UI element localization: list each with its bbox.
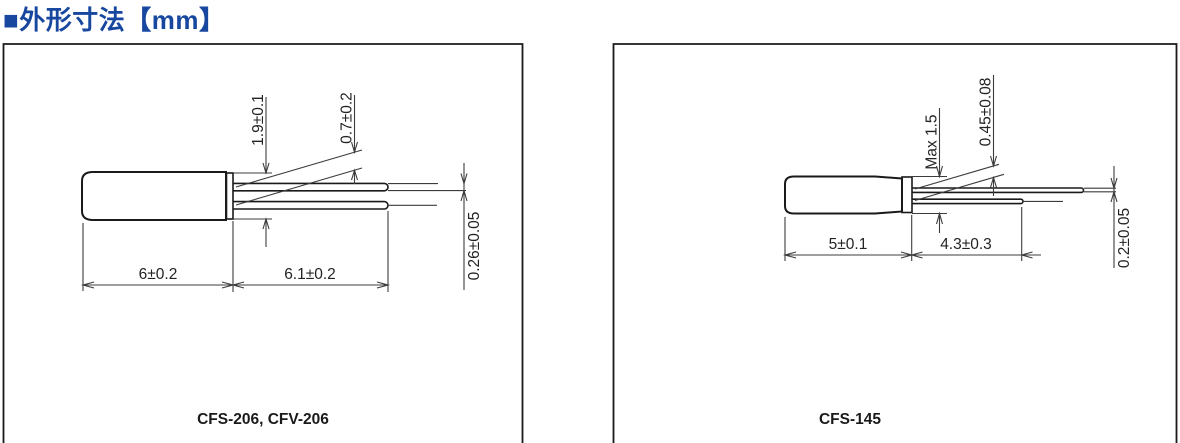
panel-frame (614, 44, 1177, 443)
dim-lead-pitch: 0.45±0.08 (978, 78, 995, 147)
panel-caption: CFS-206, CFV-206 (197, 411, 329, 428)
dim-seal-diameter: 1.9±0.1 (250, 94, 267, 146)
crystal-body (785, 177, 902, 214)
page: ■外形寸法【mm】 1.9±0.1 (0, 0, 1180, 443)
dim-lead-diameter: 0.26±0.05 (466, 212, 483, 281)
panel-caption: CFS-145 (819, 411, 881, 428)
leader-line (236, 150, 362, 187)
top-lead (906, 188, 1084, 192)
seal-cap (227, 173, 234, 219)
panel-cfs206: 1.9±0.1 0.7±0.2 0.26±0.05 6±0.2 6 (4, 44, 523, 443)
dimension-drawings: 1.9±0.1 0.7±0.2 0.26±0.05 6±0.2 6 (0, 0, 1180, 443)
dim-lead-diameter: 0.2±0.05 (1116, 208, 1133, 268)
seal-cap (902, 177, 912, 213)
dim-lead-length: 6.1±0.2 (284, 266, 336, 283)
panel-cfs145: Max 1.5 0.45±0.08 0.2±0.05 5±0.1 (614, 44, 1177, 443)
dim-body-length: 6±0.2 (139, 266, 178, 283)
dim-body-diameter-max: Max 1.5 (924, 114, 941, 169)
crystal-body (82, 172, 226, 220)
bottom-lead (906, 199, 1023, 203)
dim-body-length: 5±0.1 (829, 236, 868, 253)
dim-lead-pitch: 0.7±0.2 (339, 92, 356, 144)
bottom-lead (227, 202, 388, 209)
dim-lead-length: 4.3±0.3 (940, 236, 992, 253)
